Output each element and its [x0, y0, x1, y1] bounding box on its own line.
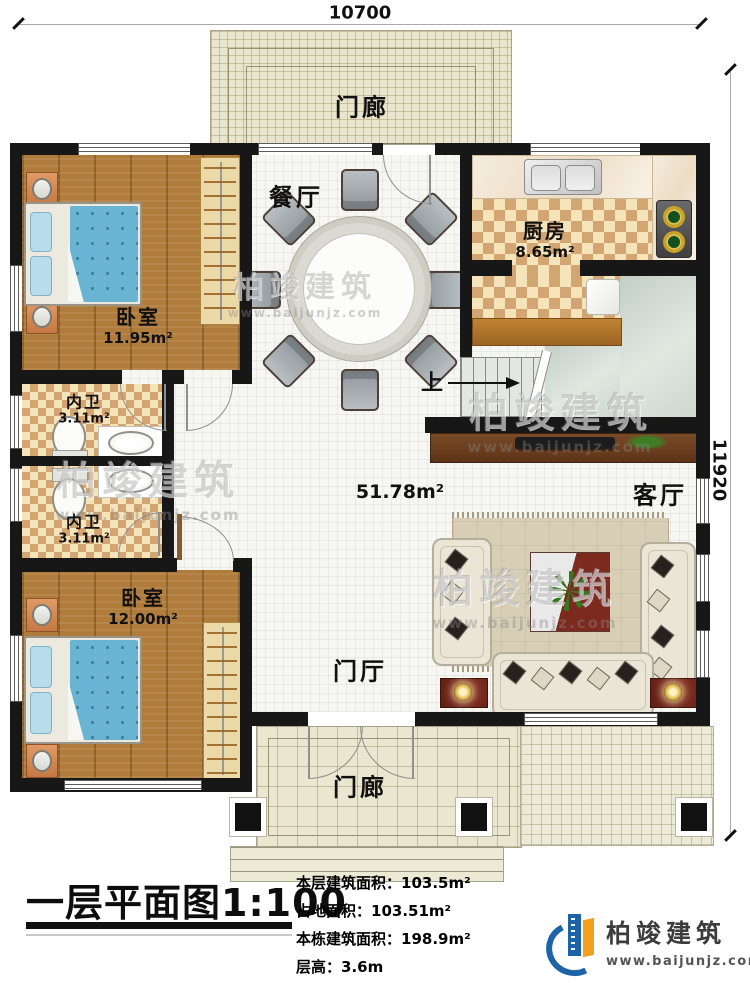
- nightstand: [26, 172, 58, 206]
- wall: [232, 370, 252, 384]
- stat-row: 本栋建筑面积：198.9m²: [296, 928, 471, 949]
- window: [78, 143, 192, 155]
- stairs-arrow: [448, 382, 510, 384]
- basin-bowl: [108, 469, 154, 493]
- dining-chair: [341, 169, 379, 211]
- door-leaf: [164, 384, 166, 430]
- gas-stove: [656, 200, 692, 258]
- window: [524, 713, 658, 725]
- dimension-line-top: [18, 24, 702, 25]
- stat-value: 103.5m²: [401, 874, 471, 892]
- window: [10, 635, 22, 702]
- coffee-table-plant: [549, 571, 589, 611]
- window: [696, 630, 710, 678]
- door-leaf: [158, 512, 160, 556]
- pillow: [30, 692, 52, 734]
- sofa-pillow: [615, 661, 639, 685]
- tv: [515, 437, 615, 449]
- wall: [425, 417, 710, 433]
- sofa-bottom: [492, 652, 654, 718]
- duvet: [70, 640, 138, 740]
- wall: [240, 560, 252, 792]
- table-lamp: [664, 683, 682, 701]
- window: [696, 554, 710, 602]
- stat-label: 本栋建筑面积：: [296, 930, 401, 948]
- stairs-up-label: 上: [421, 365, 443, 397]
- wardrobe-hangers: [204, 162, 236, 320]
- stat-row: 占地面积：103.51m²: [296, 900, 471, 921]
- kitchen-label: 厨房8.65m²: [515, 219, 574, 261]
- wash-basin: [98, 464, 164, 498]
- stair-landing: [545, 345, 620, 417]
- wall: [435, 143, 530, 155]
- sink-bowl: [565, 165, 595, 191]
- building-stats: 本层建筑面积：103.5m² 占地面积：103.51m² 本栋建筑面积：198.…: [296, 872, 471, 977]
- wardrobe: [203, 622, 241, 780]
- kitchen-annex-counter: [472, 318, 622, 346]
- entry-door-leaf: [308, 726, 310, 778]
- wall: [168, 370, 184, 384]
- sofa-pillow: [531, 667, 555, 691]
- sofa-pillow: [441, 581, 465, 605]
- stat-label: 本层建筑面积：: [296, 874, 401, 892]
- wall: [580, 260, 710, 276]
- company-logo-text: 柏竣建筑 www.baijunjz.com: [606, 914, 750, 969]
- entry-hall-label: 门厅: [333, 658, 387, 687]
- wash-basin: [98, 426, 164, 460]
- wall: [10, 558, 177, 572]
- dimension-height-label: 11920: [709, 439, 730, 502]
- pillow: [30, 256, 52, 296]
- fridge: [586, 279, 620, 315]
- stat-label: 占地面积：: [296, 902, 371, 920]
- stat-value: 3.6m: [341, 958, 383, 976]
- wall: [240, 143, 252, 382]
- basin-bowl: [108, 431, 154, 455]
- sofa-left: [432, 538, 492, 666]
- porch-top-label: 门廊: [335, 94, 389, 123]
- wardrobe: [200, 157, 240, 325]
- porch-bottom-label: 门廊: [333, 774, 387, 803]
- duvet: [70, 206, 138, 302]
- sofa-pillow: [651, 625, 675, 649]
- dining-chair: [341, 369, 379, 411]
- sofa-pillow: [587, 667, 611, 691]
- sink-bowl: [531, 165, 561, 191]
- nightstand: [26, 598, 58, 632]
- dimension-line-right: [730, 72, 731, 838]
- round-dining-table-top: [303, 233, 415, 345]
- wall: [233, 558, 252, 572]
- wall: [460, 143, 472, 357]
- stat-row: 本层建筑面积：103.5m²: [296, 872, 471, 893]
- porch-column: [456, 798, 492, 836]
- wardrobe-hangers: [207, 627, 237, 775]
- bedroom-top-label: 卧室11.95m²: [103, 305, 173, 347]
- kitchen-sink: [524, 159, 602, 195]
- bedroom-bottom-label: 卧室12.00m²: [108, 586, 178, 628]
- window: [258, 143, 374, 155]
- logo-building-orange: [583, 918, 594, 957]
- sofa-pillow: [647, 589, 671, 613]
- stat-label: 层高：: [296, 958, 341, 976]
- stairs-arrow-head: [506, 377, 520, 389]
- sofa-pillow: [651, 555, 675, 579]
- title-underline: [26, 922, 292, 929]
- porch-column: [230, 798, 266, 836]
- title-underline: [26, 934, 292, 936]
- wall: [10, 370, 122, 384]
- stat-value: 198.9m²: [401, 930, 471, 948]
- open-area-label: 51.78m²: [356, 481, 444, 503]
- sofa-pillow: [503, 661, 527, 685]
- stove-burner: [663, 231, 685, 253]
- pillow: [30, 646, 52, 688]
- stat-row: 层高：3.6m: [296, 956, 471, 977]
- stair-landing: [620, 276, 696, 417]
- stove-burner: [663, 206, 685, 228]
- table-lamp: [454, 683, 472, 701]
- dining-room-label: 餐厅: [269, 184, 323, 213]
- company-logo-icon: [550, 912, 600, 968]
- window: [64, 780, 202, 790]
- window: [10, 265, 22, 332]
- logo-building-blue: [568, 914, 581, 956]
- living-room-label: 客厅: [633, 482, 687, 511]
- door-leaf: [429, 155, 431, 205]
- double-bed: [24, 636, 142, 744]
- wall: [460, 260, 512, 276]
- window: [10, 395, 22, 449]
- porch-column: [676, 798, 712, 836]
- wall: [10, 456, 162, 466]
- stat-value: 103.51m²: [371, 902, 451, 920]
- pillow: [30, 212, 52, 252]
- sofa-pillow: [559, 661, 583, 685]
- sofa-pillow: [445, 549, 469, 573]
- floor-plan-canvas: 10700 11920 门廊: [0, 0, 750, 983]
- window: [10, 468, 22, 522]
- double-bed: [24, 202, 142, 306]
- window: [530, 143, 642, 155]
- door-leaf: [177, 514, 182, 560]
- wall: [372, 143, 383, 155]
- plant-decor: [625, 434, 669, 450]
- nightstand: [26, 744, 58, 778]
- bath-bottom-label: 内卫3.11m²: [58, 513, 109, 548]
- dimension-width-label: 10700: [329, 3, 392, 24]
- sofa-pillow: [445, 617, 469, 641]
- bath-top-label: 内卫3.11m²: [58, 393, 109, 428]
- door-leaf: [186, 384, 188, 430]
- entry-door-leaf: [412, 726, 414, 778]
